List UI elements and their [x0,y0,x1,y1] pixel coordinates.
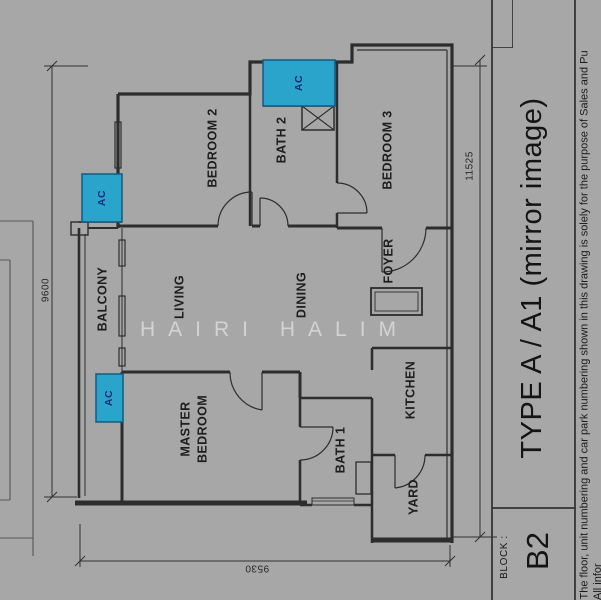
room-label-foyer: FOYER [381,238,395,283]
room-label-bedroom3: BEDROOM 3 [380,110,394,189]
titleblock-outer-rule [491,0,493,600]
bedroom3-door [337,183,367,213]
block-label: BLOCK : [499,527,511,587]
room-label-master-line2: BEDROOM [195,395,209,463]
master-door [230,372,262,410]
ac-label-upper-left: AC [96,190,108,206]
bath1-sink [356,462,371,494]
unit-type-title: TYPE A / A1 (mirror image) [516,43,550,513]
floorplan-page: AC AC AC BEDROOM 2 BATH 2 BEDROOM 3 BALC… [0,0,601,600]
room-label-balcony: BALCONY [95,266,109,331]
block-value: B2 [520,511,560,591]
bath1-door [300,427,333,460]
room-label-yard: YARD [406,479,420,515]
titleblock-top-cell-rule [512,0,513,48]
bedroom2-door [218,192,252,226]
watermark-text: HAIRI HALIM [140,318,409,342]
ac-label-top: AC [293,75,305,91]
shaft-cross [302,106,334,130]
room-label-kitchen: KITCHEN [403,361,417,419]
room-label-bath1: BATH 1 [333,427,347,474]
disclaimer-line1: The floor, unit numbering and car park n… [579,0,592,600]
bath2-door [260,198,288,226]
neighbor-unit-lines [0,221,33,556]
fixtures [302,106,422,494]
windows [115,122,354,505]
foyer-cabinet-inner [375,292,418,311]
disclaimer-line2: All infor [592,0,601,600]
titleblock-top-cell-divider [492,47,513,48]
floor-plan-drawing: AC AC AC BEDROOM 2 BATH 2 BEDROOM 3 BALC… [0,0,601,600]
room-label-dining: DINING [294,272,308,318]
room-label-living: LIVING [172,275,186,319]
room-label-bedroom2: BEDROOM 2 [205,108,219,187]
dimension-lines [44,55,497,567]
dim-bottom: 9530 [245,562,269,573]
room-label-bath2: BATH 2 [274,117,288,164]
dim-left: 9600 [41,278,52,302]
ac-label-lower-left: AC [103,390,115,406]
dim-right: 11525 [465,151,476,181]
room-label-master-line1: MASTER [178,401,192,456]
titleblock-disclaimer-rule [574,0,576,600]
